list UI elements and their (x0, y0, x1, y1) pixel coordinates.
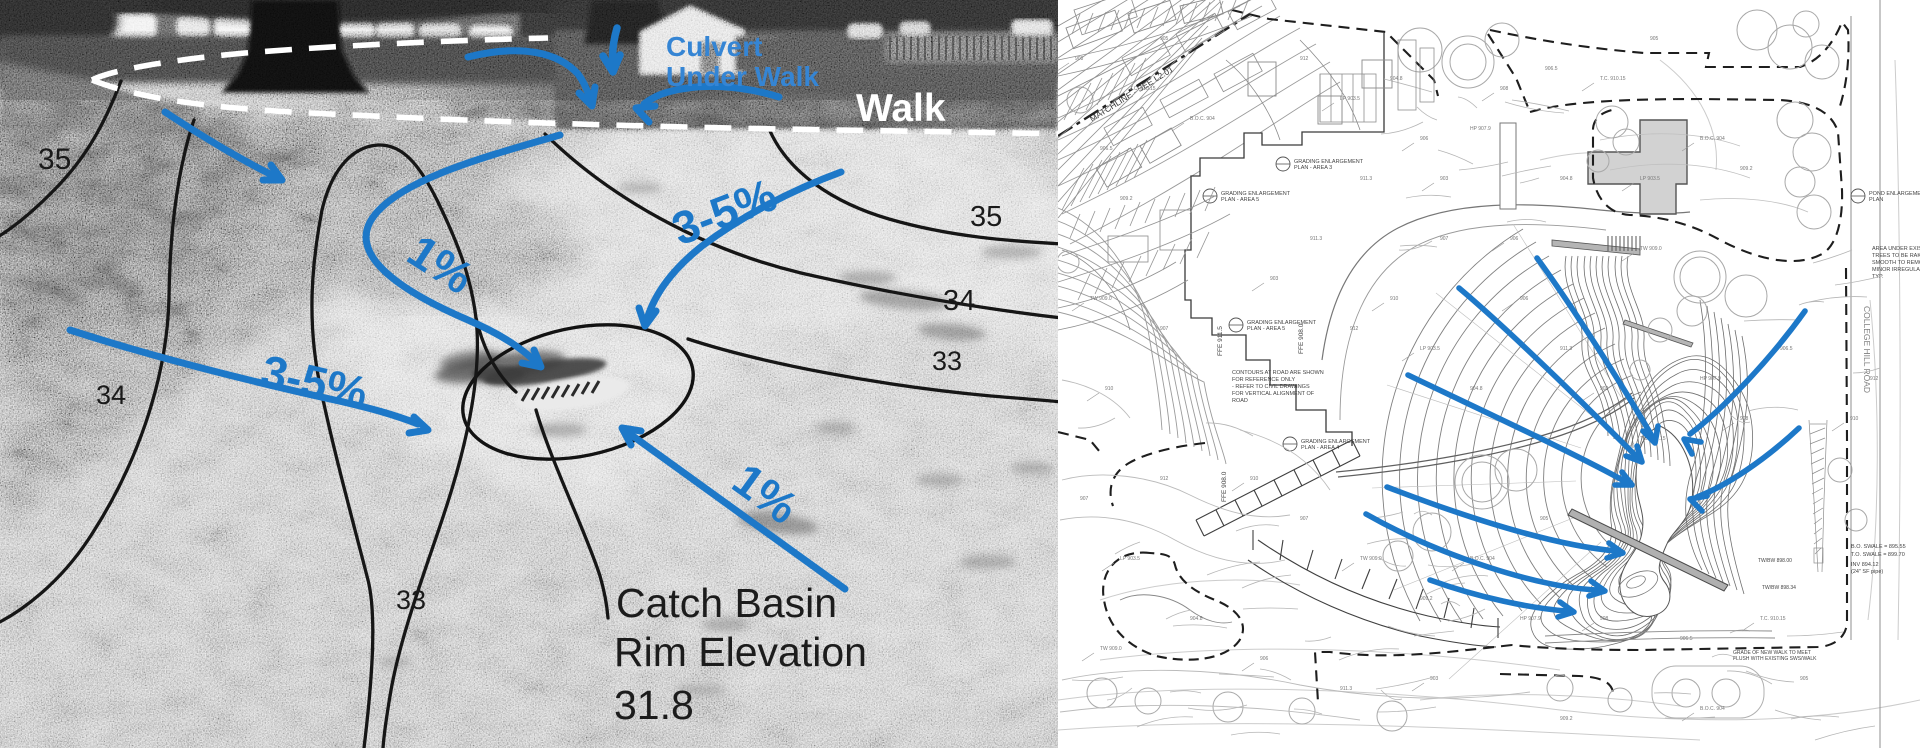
svg-text:B.O. SWALE = 895.55: B.O. SWALE = 895.55 (1851, 544, 1906, 550)
svg-text:TW 909.0: TW 909.0 (1100, 646, 1122, 652)
svg-text:35: 35 (38, 143, 71, 176)
svg-text:FFE 911.5: FFE 911.5 (1217, 326, 1224, 356)
svg-text:INV 894.12: INV 894.12 (1851, 562, 1879, 568)
svg-text:906: 906 (1510, 236, 1519, 242)
svg-text:TREES TO BE RAKED: TREES TO BE RAKED (1872, 253, 1920, 259)
svg-text:911.3: 911.3 (1340, 686, 1352, 692)
svg-text:PLAN: PLAN (1869, 197, 1883, 203)
svg-text:909.2: 909.2 (1120, 196, 1133, 202)
svg-text:34: 34 (96, 380, 126, 410)
svg-text:35: 35 (970, 201, 1002, 233)
svg-text:34: 34 (943, 285, 975, 317)
svg-text:PLAN - AREA 5: PLAN - AREA 5 (1221, 197, 1259, 203)
svg-text:907: 907 (1440, 236, 1449, 242)
svg-text:33: 33 (932, 346, 962, 376)
svg-text:LP 903.5: LP 903.5 (1420, 346, 1440, 352)
svg-text:ROAD: ROAD (1232, 398, 1248, 404)
svg-text:912: 912 (1300, 56, 1309, 62)
svg-text:908: 908 (1600, 616, 1609, 622)
svg-text:PLAN - AREA 3: PLAN - AREA 3 (1294, 165, 1332, 171)
svg-text:PLAN - AREA 5: PLAN - AREA 5 (1247, 326, 1285, 332)
svg-text:T.O. SWALE = 899.70: T.O. SWALE = 899.70 (1851, 552, 1905, 558)
svg-text:B.O.C. 904: B.O.C. 904 (1190, 116, 1215, 122)
svg-text:909.2: 909.2 (1740, 166, 1753, 172)
svg-text:Walk: Walk (856, 87, 946, 130)
svg-text:Rim Elevation: Rim Elevation (614, 629, 867, 675)
svg-text:FFE 908.0: FFE 908.0 (1298, 323, 1305, 354)
svg-text:HP 907.9: HP 907.9 (1520, 616, 1541, 622)
svg-text:FLUSH WITH EXISTING SWS/WALK: FLUSH WITH EXISTING SWS/WALK (1733, 656, 1817, 662)
svg-text:LP 903.5: LP 903.5 (1120, 556, 1140, 562)
svg-text:SMOOTH TO REMOVE: SMOOTH TO REMOVE (1872, 260, 1920, 266)
svg-text:AREA UNDER EXISTING: AREA UNDER EXISTING (1872, 246, 1920, 252)
svg-text:Catch Basin: Catch Basin (616, 580, 837, 626)
svg-text:903: 903 (1440, 176, 1449, 182)
svg-text:907: 907 (1300, 516, 1309, 522)
svg-text:910: 910 (1105, 386, 1114, 392)
svg-text:910: 910 (1850, 416, 1859, 422)
svg-text:Under Walk: Under Walk (666, 61, 819, 92)
svg-text:PLAN - AREA 4: PLAN - AREA 4 (1301, 445, 1339, 451)
svg-text:903: 903 (1600, 386, 1609, 392)
svg-text:910: 910 (1390, 296, 1399, 302)
svg-text:910: 910 (1250, 476, 1259, 482)
svg-text:907: 907 (1160, 326, 1169, 332)
svg-text:FOR REFERENCE ONLY: FOR REFERENCE ONLY (1232, 377, 1295, 383)
svg-text:906.5: 906.5 (1680, 636, 1693, 642)
svg-text:LP 903.5: LP 903.5 (1640, 176, 1660, 182)
svg-text:31.8: 31.8 (614, 682, 694, 728)
svg-text:908: 908 (1740, 416, 1749, 422)
svg-text:906: 906 (1520, 296, 1529, 302)
svg-text:904.8: 904.8 (1560, 176, 1573, 182)
svg-text:906: 906 (1420, 136, 1429, 142)
svg-text:912: 912 (1870, 376, 1879, 382)
svg-text:911.3: 911.3 (1560, 346, 1572, 352)
svg-text:FFE 908.0: FFE 908.0 (1221, 471, 1228, 502)
svg-text:911.3: 911.3 (1310, 236, 1322, 242)
svg-text:909.2: 909.2 (1420, 596, 1433, 602)
svg-text:B.O.C. 904: B.O.C. 904 (1700, 706, 1725, 712)
svg-text:TW/BW 898.34: TW/BW 898.34 (1762, 585, 1796, 591)
svg-text:T.C. 910.15: T.C. 910.15 (1130, 86, 1156, 92)
svg-text:903: 903 (1430, 676, 1439, 682)
svg-text:904.8: 904.8 (1470, 386, 1483, 392)
svg-text:905: 905 (1800, 676, 1809, 682)
svg-text:903: 903 (1270, 276, 1279, 282)
svg-text:(24″ SF pipe): (24″ SF pipe) (1851, 569, 1883, 575)
svg-text:TW/BW 898.00: TW/BW 898.00 (1758, 558, 1792, 564)
svg-text:905: 905 (1540, 516, 1549, 522)
svg-text:912: 912 (1350, 326, 1359, 332)
svg-text:TW 909.0: TW 909.0 (1360, 556, 1382, 562)
svg-text:B.O.C. 904: B.O.C. 904 (1700, 136, 1725, 142)
svg-text:T.C. 910.15: T.C. 910.15 (1600, 76, 1626, 82)
svg-text:33: 33 (396, 585, 426, 615)
svg-text:904.8: 904.8 (1190, 616, 1203, 622)
svg-text:Culvert: Culvert (666, 31, 762, 62)
svg-text:- REFER TO CIVIL DRAWINGS: - REFER TO CIVIL DRAWINGS (1232, 384, 1310, 390)
svg-text:CONTOURS AT ROAD ARE SHOWN: CONTOURS AT ROAD ARE SHOWN (1232, 370, 1324, 376)
svg-text:HP 907.9: HP 907.9 (1700, 376, 1721, 382)
svg-text:905: 905 (1650, 36, 1659, 42)
svg-text:912: 912 (1160, 476, 1169, 482)
svg-text:LP 903.5: LP 903.5 (1340, 96, 1360, 102)
svg-text:906.5: 906.5 (1545, 66, 1558, 72)
svg-text:906: 906 (1260, 656, 1269, 662)
svg-text:MINOR IRREGULARITIES: MINOR IRREGULARITIES (1872, 267, 1920, 273)
svg-text:906.5: 906.5 (1780, 346, 1793, 352)
svg-text:909.2: 909.2 (1560, 716, 1573, 722)
svg-text:908: 908 (1500, 86, 1509, 92)
svg-text:FOR VERTICAL ALIGNMENT OF: FOR VERTICAL ALIGNMENT OF (1232, 391, 1315, 397)
svg-text:HP 907.9: HP 907.9 (1470, 126, 1491, 132)
svg-text:T.C. 910.15: T.C. 910.15 (1760, 616, 1786, 622)
svg-text:911.3: 911.3 (1360, 176, 1372, 182)
svg-text:TW 909.0: TW 909.0 (1640, 246, 1662, 252)
svg-text:907: 907 (1080, 496, 1089, 502)
